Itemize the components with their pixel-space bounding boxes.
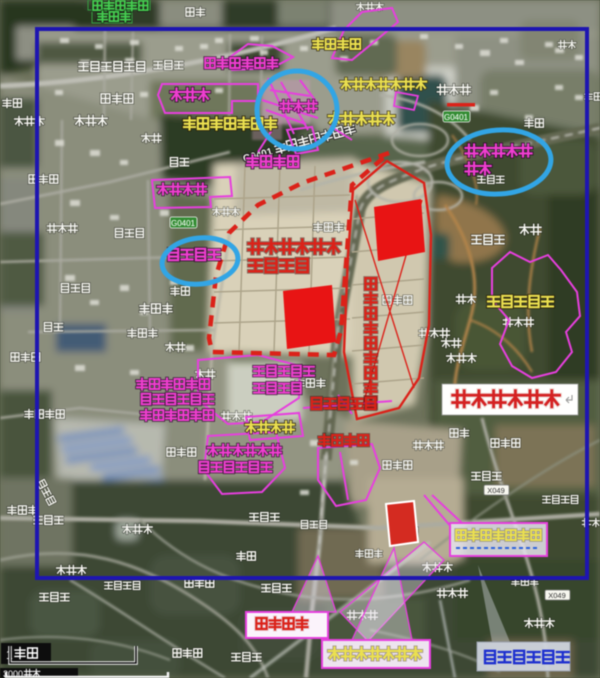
svg-text:G0401: G0401 — [171, 219, 196, 228]
svg-text:X049: X049 — [487, 486, 505, 495]
svg-text:X049: X049 — [548, 591, 566, 600]
svg-text:G0401: G0401 — [444, 113, 469, 122]
